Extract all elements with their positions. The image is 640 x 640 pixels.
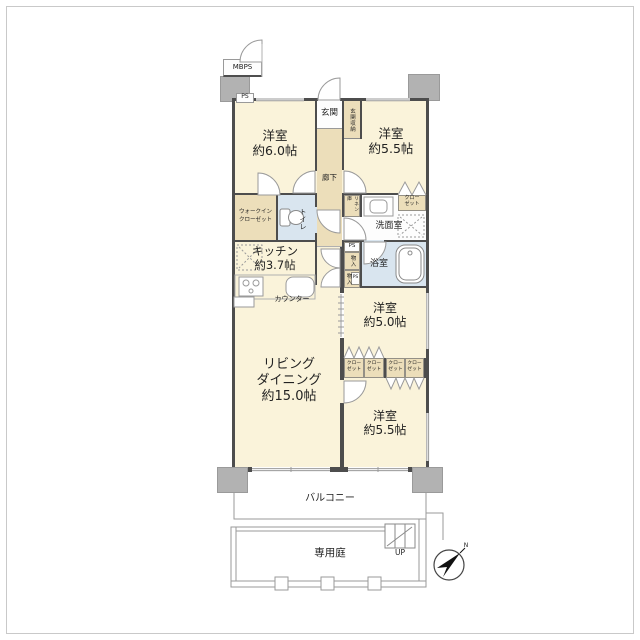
floor-plan-canvas: MBPS PS 洋室 約6.0帖 玄関 玄関収納 洋室 約5.5帖 廊下 ウォー… (0, 0, 640, 640)
entrance-door-gap (318, 98, 340, 101)
bedroom-nw-name: 洋室 (235, 129, 315, 143)
north-label: N (461, 543, 471, 550)
entrance-label: 玄関 (317, 109, 342, 119)
bedroom-ne-name: 洋室 (356, 127, 426, 141)
closet-4-label-1: クロー (405, 361, 424, 367)
washroom-label: 洗面室 (358, 221, 420, 231)
living-dining-label-1: リビング (237, 358, 341, 373)
closet-2-label-2: ゼット (364, 367, 384, 373)
bedroom-e-name: 洋室 (344, 302, 426, 316)
kitchen-name: キッチン (235, 245, 315, 258)
kitchen-living-floor (235, 242, 315, 467)
ps-label-column: PS (344, 243, 360, 249)
window-top-nw (256, 98, 304, 101)
closet-1-label-2: ゼット (344, 367, 364, 373)
living-dining-size: 約15.0帖 (237, 390, 341, 405)
corridor-label: 廊下 (315, 174, 344, 183)
up-label: UP (388, 549, 412, 558)
bedroom-nw-size: 約6.0帖 (235, 144, 315, 158)
window-right-e (426, 293, 429, 349)
bedroom-ne-size: 約5.5帖 (356, 142, 426, 156)
closet-ne-label-2: ゼット (398, 202, 426, 208)
ps-label-top: PS (236, 94, 254, 101)
shaft-block-bottom-right (412, 467, 443, 493)
wic-label-2: クローゼット (235, 217, 276, 223)
closet-3-label-1: クロー (386, 361, 405, 367)
living-dining-label-2: ダイニング (237, 374, 341, 389)
door-gap-toilet (315, 207, 317, 233)
shaft-block-bottom-left (217, 467, 248, 493)
closet-4-label-2: ゼット (405, 367, 424, 373)
bedroom-se-name: 洋室 (344, 410, 426, 424)
window-top-ne (366, 98, 410, 101)
closet-3-label-2: ゼット (386, 367, 405, 373)
door-gap-bath (364, 240, 384, 242)
living-arm-floor (317, 247, 340, 467)
closet-2-label-1: クロー (364, 361, 384, 367)
toilet-label: トイレ (297, 202, 309, 236)
garden-label: 専用庭 (288, 547, 372, 559)
bedroom-e-size: 約5.0帖 (344, 316, 426, 330)
mbps-label: MBPS (223, 63, 262, 71)
ps-label-2: PS (351, 275, 360, 280)
storage-label-1: 物入 (347, 253, 358, 269)
door-gap-washroom (342, 217, 344, 240)
shaft-block-top-right (408, 74, 440, 101)
bedroom-se-size: 約5.5帖 (344, 424, 426, 438)
balcony-label: バルコニー (280, 493, 380, 505)
counter-label: カウンター (268, 295, 316, 303)
closet-1-label-1: クロー (344, 361, 364, 367)
bathroom-label: 浴室 (362, 259, 396, 269)
window-bottom-se (348, 467, 408, 472)
kitchen-size: 約3.7帖 (235, 259, 315, 272)
window-right-se (426, 413, 429, 461)
linen-label: リネン庫 (346, 196, 358, 216)
wic-label-1: ウォークイン (235, 209, 276, 215)
window-bottom-living (252, 467, 330, 472)
